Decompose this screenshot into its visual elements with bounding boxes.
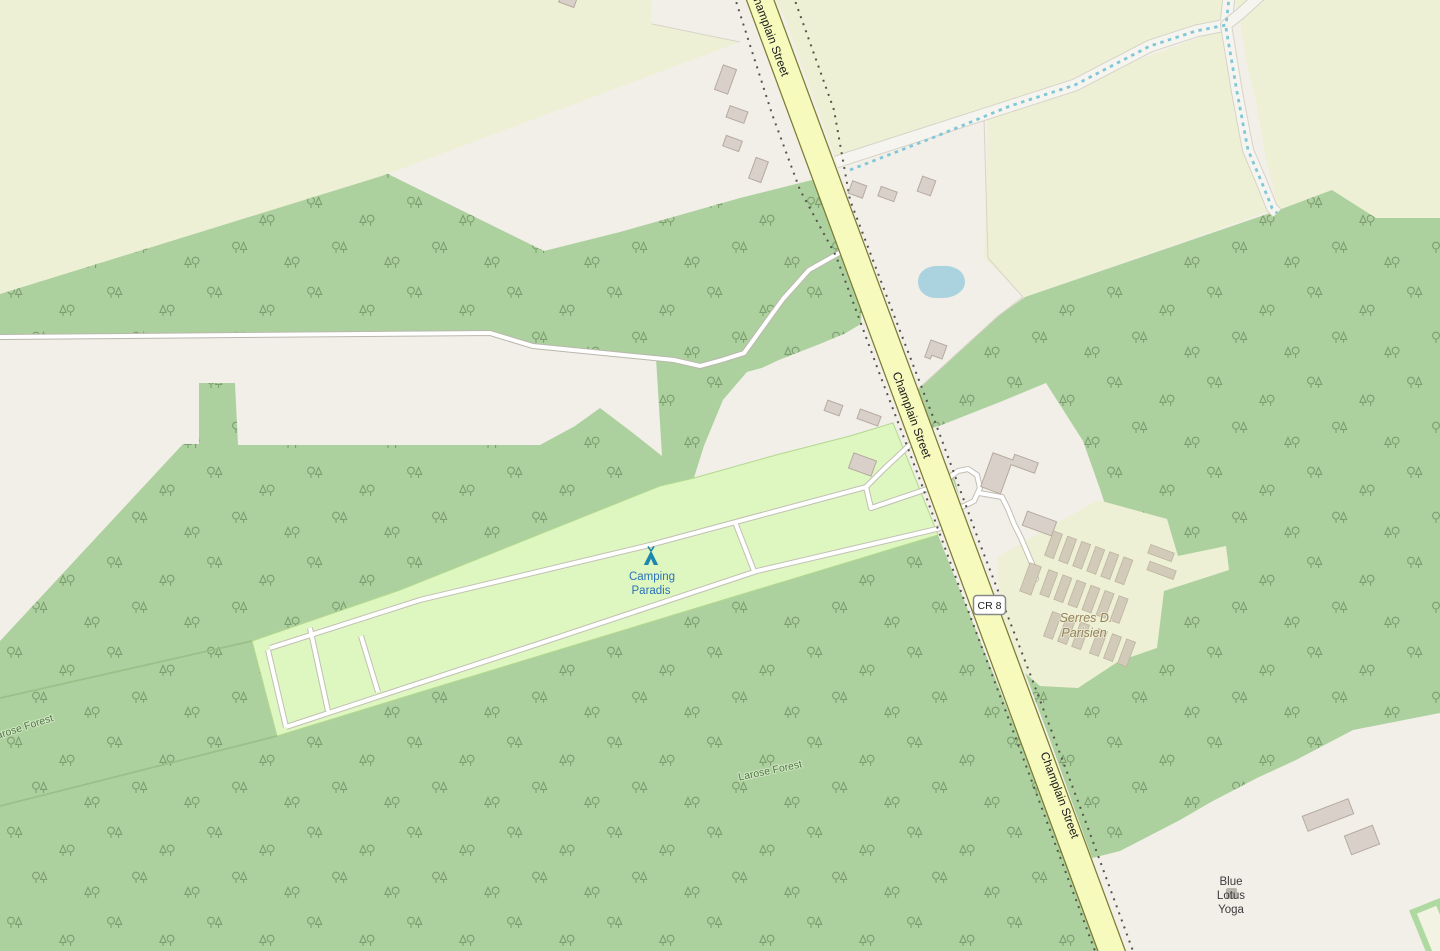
svg-text:Blue: Blue <box>1219 876 1242 888</box>
svg-text:Camping: Camping <box>629 571 675 583</box>
svg-text:Serres D.: Serres D. <box>1060 611 1113 625</box>
svg-text:Lotus: Lotus <box>1217 890 1245 902</box>
svg-text:CR 8: CR 8 <box>978 600 1002 612</box>
svg-text:Paradis: Paradis <box>632 585 671 597</box>
svg-text:Yoga: Yoga <box>1218 904 1244 916</box>
svg-text:Parisien: Parisien <box>1061 626 1106 640</box>
